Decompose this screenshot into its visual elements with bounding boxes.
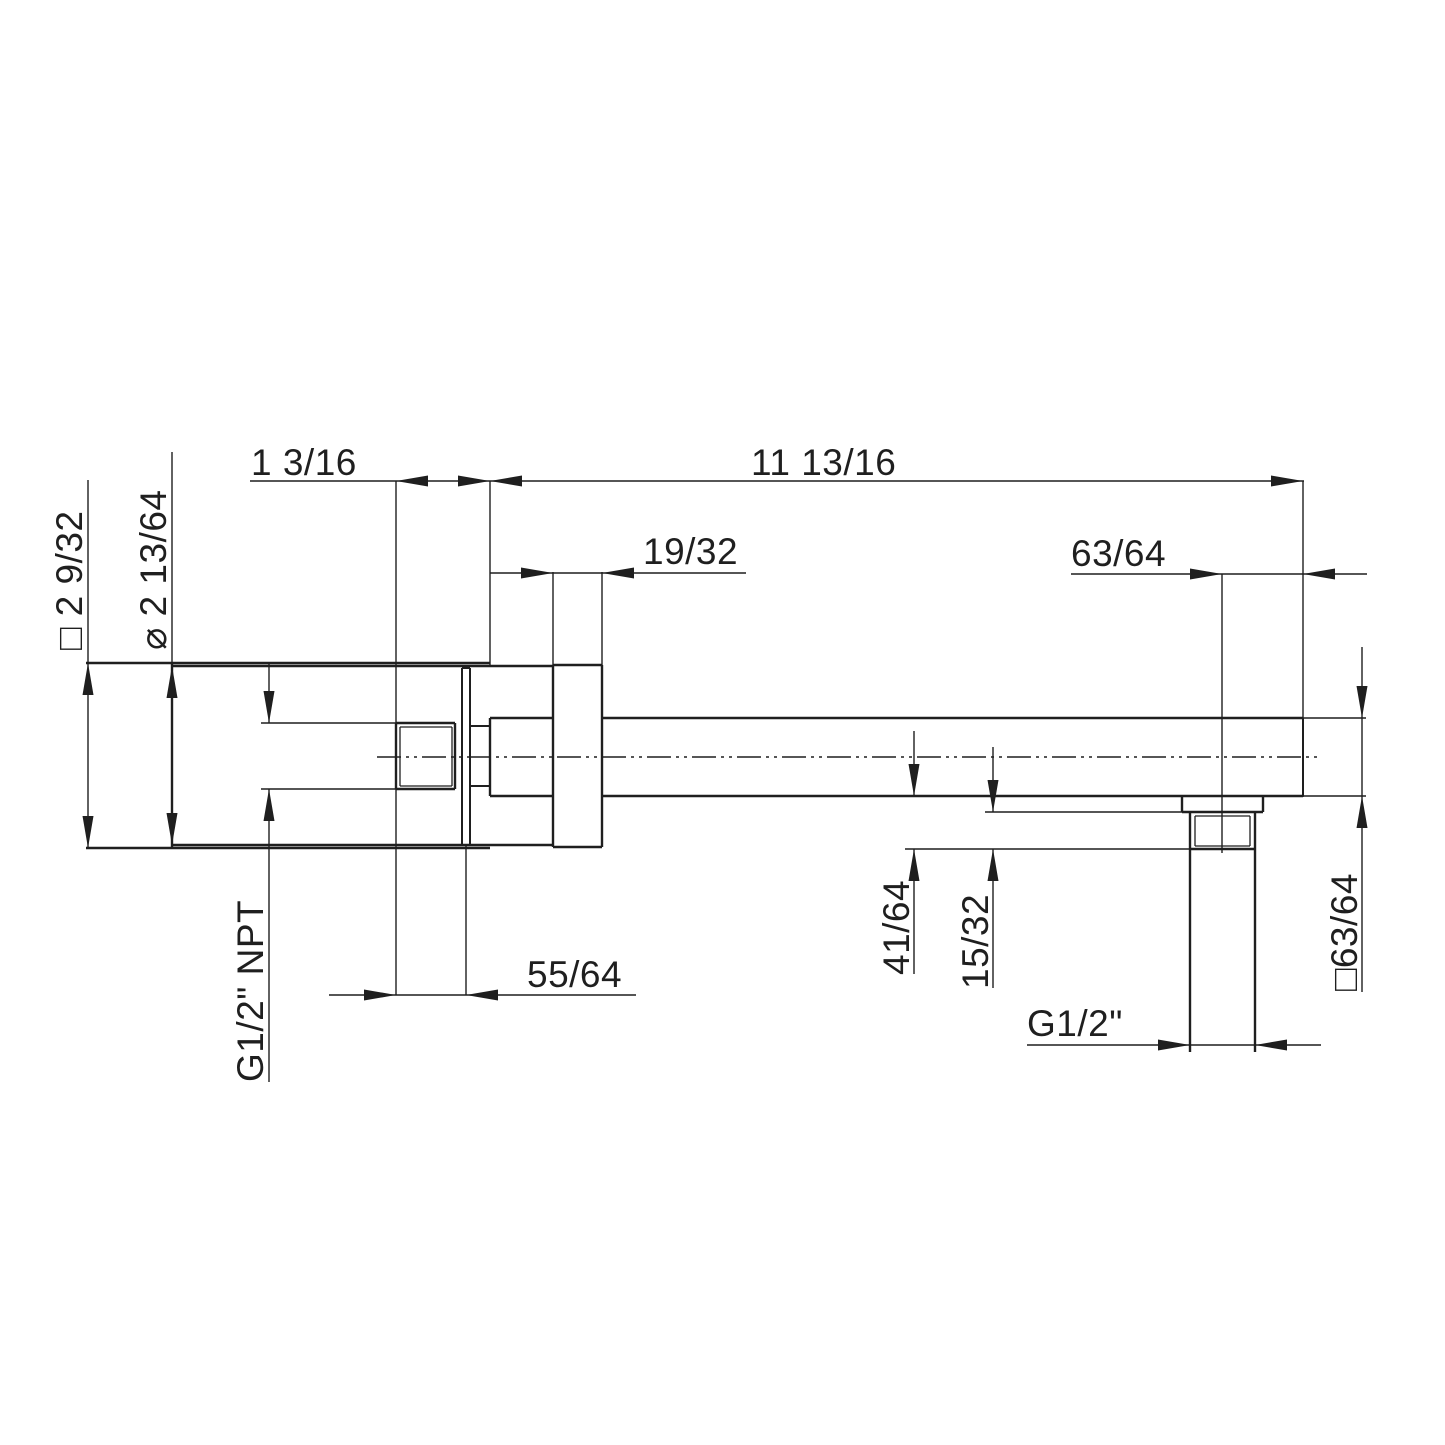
dim-inlet-thread-length-label: 55/64: [527, 954, 622, 995]
dim-outlet-thread-label: G1/2": [1027, 1003, 1123, 1044]
drawing-canvas: 1 3/16 11 13/16 19/32 63/64 55/64 G1/2" …: [0, 0, 1445, 1445]
drawing-background: [0, 0, 1445, 1445]
dim-protrusion-label: 1 3/16: [251, 442, 357, 483]
dim-inlet-thread-label: G1/2" NPT: [230, 900, 271, 1082]
dim-arm-length-label: 11 13/16: [751, 442, 896, 483]
dim-wall-escutcheon-square-label: □ 2 9/32: [49, 511, 90, 651]
dim-slide-escutcheon-thickness-label: 19/32: [643, 531, 738, 572]
shower-arm-dimension-drawing: 1 3/16 11 13/16 19/32 63/64 55/64 G1/2" …: [0, 0, 1445, 1445]
dim-wall-escutcheon-diameter-label: ⌀ 2 13/64: [133, 489, 174, 650]
dim-outlet-to-end-label: 63/64: [1071, 533, 1166, 574]
dim-arm-square-profile-label: □63/64: [1324, 873, 1365, 991]
dim-outlet-thread-length-label: 15/32: [955, 894, 996, 989]
dim-drop-depth-label: 41/64: [876, 880, 917, 975]
